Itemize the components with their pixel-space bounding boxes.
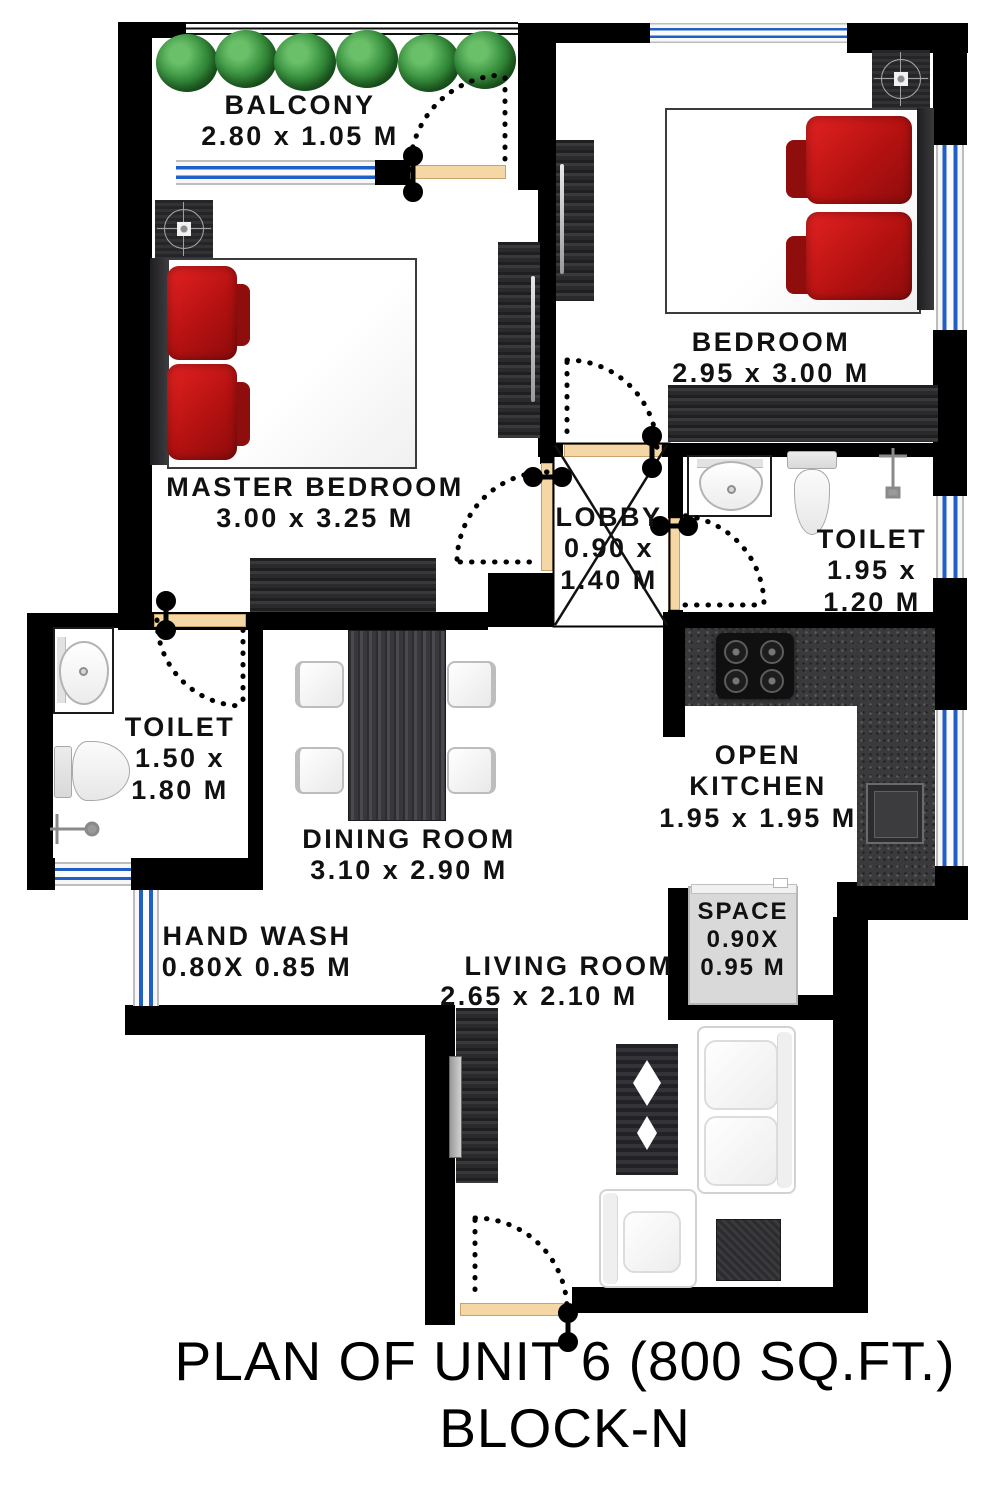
room-label-toilet-left: TOILET 1.50 x 1.80 M <box>110 712 250 806</box>
hedge-plant-icon <box>398 34 460 92</box>
wash-basin <box>687 455 772 517</box>
window <box>936 145 964 330</box>
hedge-plant-icon <box>454 31 516 89</box>
toilet-wc <box>54 746 72 798</box>
room-dims: 1.95 x <box>827 555 917 585</box>
dining-chair <box>295 661 344 708</box>
wardrobe <box>250 558 436 612</box>
kitchen-hob <box>716 633 794 699</box>
dining-chair <box>447 747 496 794</box>
wall <box>27 613 53 890</box>
window <box>176 160 375 185</box>
window <box>936 710 964 866</box>
wall <box>553 443 563 457</box>
room-dims: 1.95 x 1.95 M <box>659 803 857 833</box>
wall <box>933 30 967 145</box>
room-label-living-room-name: LIVING ROOM <box>419 951 719 982</box>
door <box>410 165 506 179</box>
room-label-open-kitchen: OPEN KITCHEN 1.95 x 1.95 M <box>658 740 858 834</box>
room-dims: 0.90X <box>707 926 780 953</box>
dresser <box>556 140 594 301</box>
window <box>55 862 131 886</box>
ceiling-fan-icon <box>872 50 930 108</box>
plan-title-line2: BLOCK-N <box>130 1395 1000 1462</box>
room-name: SPACE <box>698 898 789 925</box>
door <box>564 444 662 457</box>
room-name: DINING ROOM <box>302 824 516 854</box>
room-dims: 1.20 M <box>823 587 921 617</box>
wall <box>933 330 967 496</box>
wall <box>518 23 556 190</box>
hedge-plant-icon <box>215 30 277 88</box>
room-dims: 2.95 x 3.00 M <box>672 358 870 388</box>
pillow <box>167 364 237 460</box>
wall <box>556 23 650 43</box>
hedge-plant-icon <box>336 30 398 88</box>
room-name: KITCHEN <box>689 771 827 801</box>
wall <box>373 160 411 185</box>
room-dims: 0.80X 0.85 M <box>162 952 353 982</box>
tv-screen <box>449 1056 462 1158</box>
tv-unit <box>456 1008 498 1183</box>
room-name: BALCONY <box>225 90 376 120</box>
wall <box>572 1287 835 1313</box>
wardrobe <box>668 385 938 442</box>
wall <box>540 442 553 464</box>
plan-title-line1: PLAN OF UNIT 6 (800 SQ.FT.) <box>130 1328 1000 1395</box>
room-label-toilet-right: TOILET 1.95 x 1.20 M <box>802 524 942 618</box>
wall <box>663 630 685 737</box>
room-dims: 1.50 x <box>135 743 225 773</box>
room-label-master-bedroom: MASTER BEDROOM 3.00 x 3.25 M <box>165 472 465 535</box>
room-dims: 1.40 M <box>560 565 658 595</box>
pillow <box>167 266 237 360</box>
floor-plan: BALCONY 2.80 x 1.05 M MASTER BEDROOM 3.0… <box>0 0 1000 1489</box>
dining-chair <box>447 661 496 708</box>
room-name: BEDROOM <box>692 327 851 357</box>
room-name: HAND WASH <box>163 921 352 951</box>
room-dims: 3.10 x 2.90 M <box>310 855 508 885</box>
side-table <box>716 1219 781 1281</box>
wall <box>668 457 683 520</box>
room-label-lobby: LOBBY 0.90 x 1.40 M <box>551 502 667 596</box>
window <box>650 23 847 43</box>
rug <box>616 1044 678 1175</box>
hedge-plant-icon <box>274 33 336 91</box>
dining-chair <box>295 747 344 794</box>
room-dims: 1.80 M <box>131 775 229 805</box>
dining-table <box>348 630 446 821</box>
plan-title: PLAN OF UNIT 6 (800 SQ.FT.) BLOCK-N <box>130 1328 1000 1462</box>
dresser <box>498 242 540 438</box>
pillow <box>806 212 912 300</box>
wall <box>538 190 556 457</box>
wall <box>118 22 152 627</box>
room-label-living-room-dims: 2.65 x 2.10 M <box>389 981 689 1012</box>
kitchen-sink <box>866 783 924 844</box>
room-dims: 0.90 x <box>564 533 654 563</box>
room-name: TOILET <box>817 524 928 554</box>
room-name: LIVING ROOM <box>465 951 674 981</box>
door <box>668 518 680 610</box>
room-label-bedroom: BEDROOM 2.95 x 3.00 M <box>641 327 901 390</box>
room-label-dining-room: DINING ROOM 3.10 x 2.90 M <box>259 824 559 887</box>
sofa <box>697 1026 796 1194</box>
ceiling-fan-icon <box>155 200 213 258</box>
wall <box>425 1005 455 1325</box>
room-name: OPEN <box>715 740 802 770</box>
door <box>460 1303 570 1316</box>
hedge-plant-icon <box>156 34 218 92</box>
room-label-balcony: BALCONY 2.80 x 1.05 M <box>180 90 420 153</box>
room-name: LOBBY <box>556 502 663 532</box>
wall <box>833 917 868 1313</box>
wall <box>131 858 263 890</box>
room-label-hand-wash: HAND WASH 0.80X 0.85 M <box>107 921 407 984</box>
door <box>154 614 246 627</box>
wall <box>125 1005 427 1035</box>
bedroom-bed-headboard <box>917 108 934 310</box>
wall <box>837 882 968 920</box>
armchair <box>599 1189 697 1288</box>
pillow <box>806 116 912 204</box>
wash-basin <box>53 627 114 714</box>
kitchen-counter <box>857 628 935 886</box>
room-dims: 2.80 x 1.05 M <box>201 121 399 151</box>
room-dims: 3.00 x 3.25 M <box>216 503 414 533</box>
room-name: TOILET <box>125 712 236 742</box>
master-bed-headboard <box>150 258 167 465</box>
toilet-wc <box>787 451 837 469</box>
room-name: MASTER BEDROOM <box>166 472 464 502</box>
room-dims: 2.65 x 2.10 M <box>440 981 638 1011</box>
wall <box>488 573 553 627</box>
